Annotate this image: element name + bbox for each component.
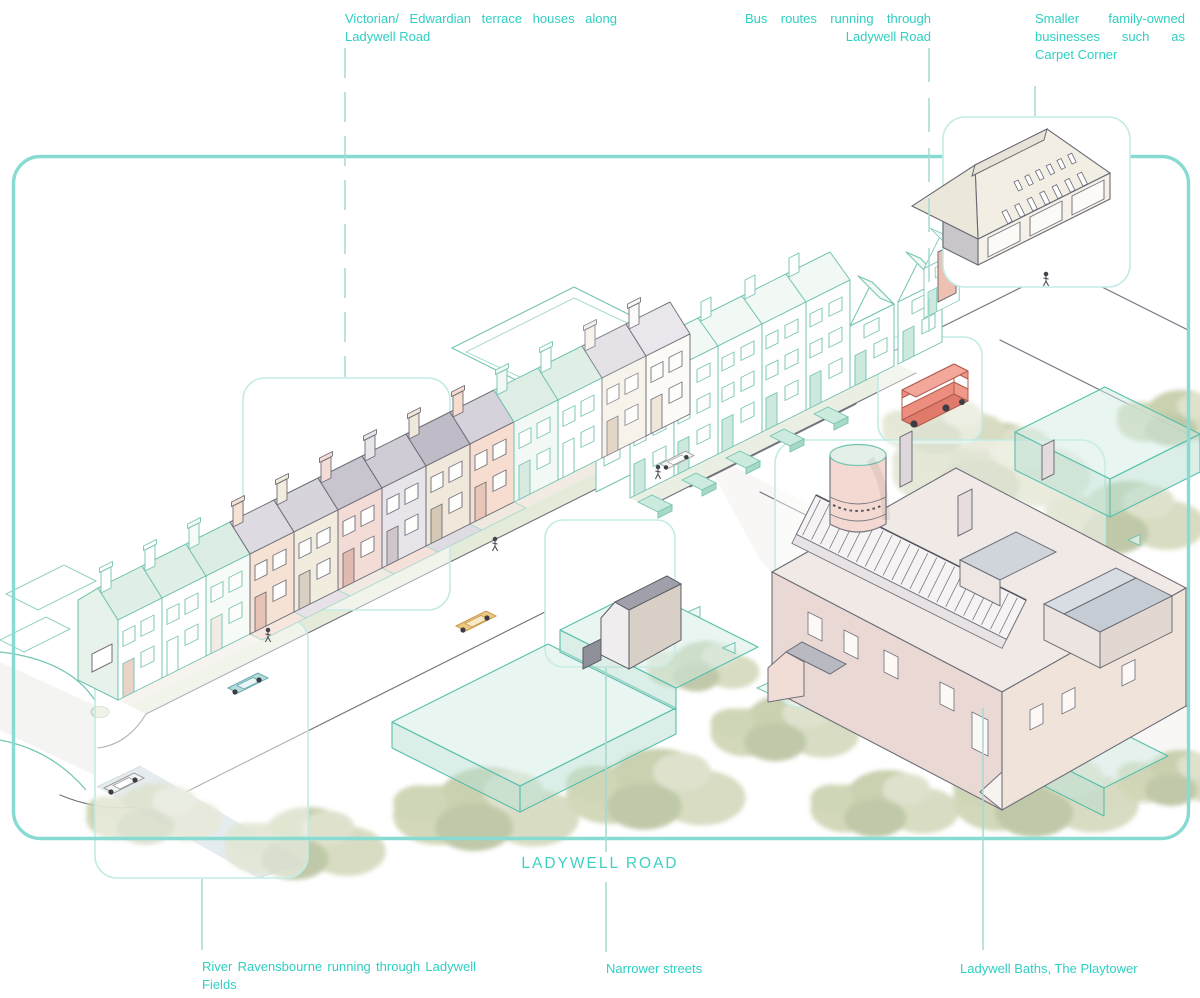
annotation-river-ravensbourne: River Ravensbourne running through Ladyw…	[202, 958, 476, 994]
annotation-ladywell-baths: Ladywell Baths, The Playtower	[960, 960, 1138, 978]
illustration-canvas	[0, 0, 1200, 998]
annotation-terrace-houses: Victorian/ Edwardian terrace houses alon…	[345, 10, 617, 46]
road-name-label: LADYWELL ROAD	[470, 855, 730, 873]
pedestrian	[492, 537, 497, 551]
annotation-bus-routes: Bus routes running through Ladywell Road	[745, 10, 931, 46]
annotation-family-businesses: Smaller family-owned businesses such as …	[1035, 10, 1185, 64]
playtower-water-tower	[830, 445, 886, 533]
annotation-narrower-streets: Narrower streets	[606, 960, 702, 978]
yellow-car	[456, 611, 496, 633]
axonometric-site-diagram: Victorian/ Edwardian terrace houses alon…	[0, 0, 1200, 998]
